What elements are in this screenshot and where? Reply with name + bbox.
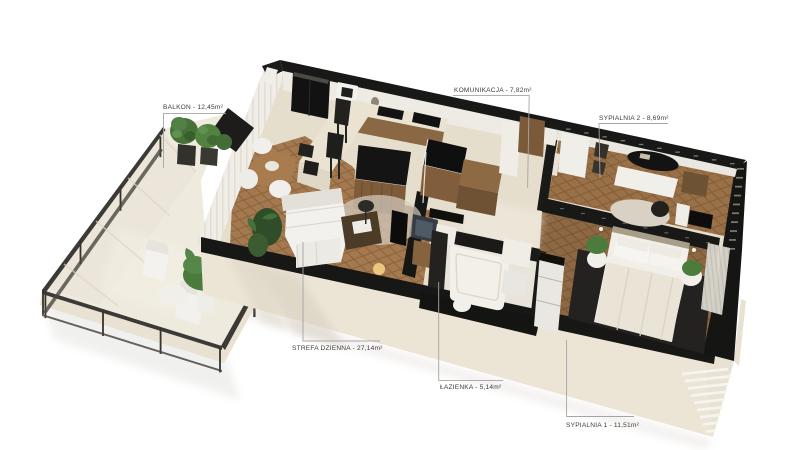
svg-text:SYPIALNIA 1 - 11,51m²: SYPIALNIA 1 - 11,51m² (566, 422, 640, 429)
svg-text:ŁAZIENKA - 5,14m²: ŁAZIENKA - 5,14m² (440, 384, 502, 391)
svg-text:SYPIALNIA 2 - 8,69m²: SYPIALNIA 2 - 8,69m² (599, 115, 669, 122)
svg-text:STREFA DZIENNA - 27,14m²: STREFA DZIENNA - 27,14m² (292, 345, 383, 352)
svg-text:KOMUNIKACJA - 7,82m²: KOMUNIKACJA - 7,82m² (454, 87, 532, 94)
svg-text:BALKON - 12,45m²: BALKON - 12,45m² (163, 104, 224, 111)
